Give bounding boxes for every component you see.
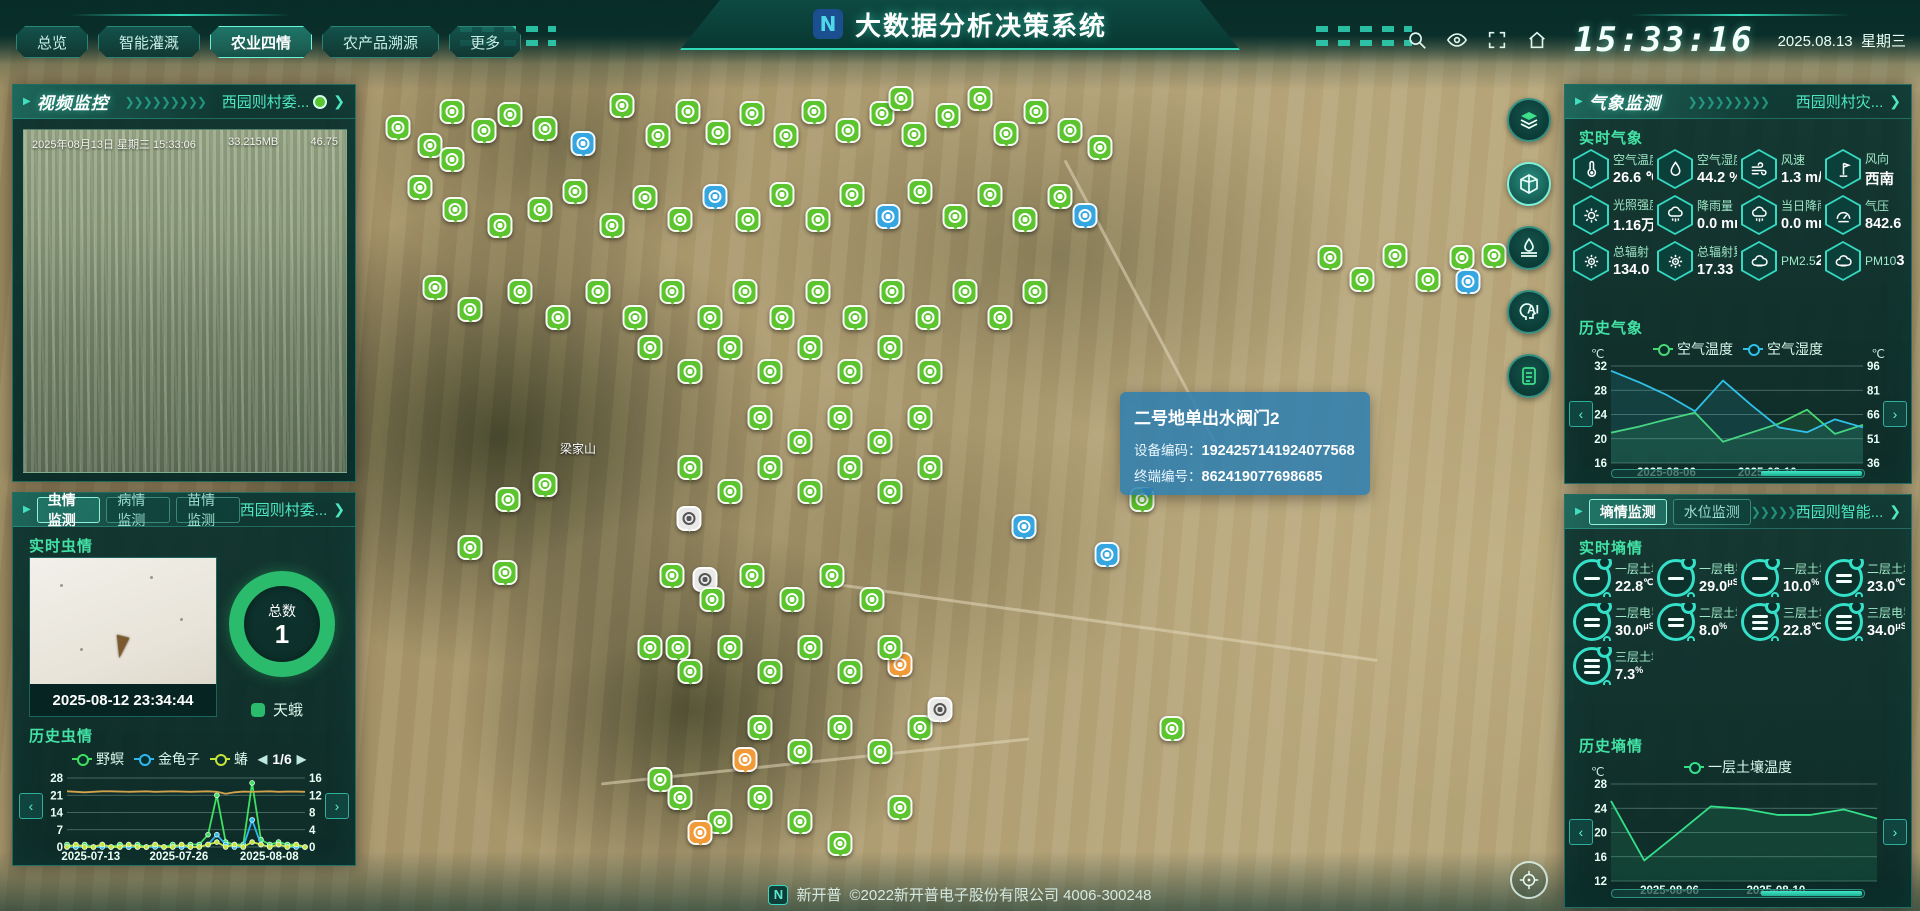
humidity-icon	[1657, 149, 1693, 189]
stat-label: 二层土壤湿度	[1699, 606, 1737, 620]
weather-stat-气压: 气压842.6 hP	[1825, 195, 1905, 235]
stat-label: 光照强度	[1613, 198, 1653, 212]
device-pin[interactable]	[916, 305, 941, 330]
sunshine-icon	[1573, 195, 1609, 235]
stat-value: 44.2 %	[1697, 170, 1737, 186]
device-pin[interactable]	[443, 197, 468, 222]
chart-next-button[interactable]: ›	[1883, 401, 1907, 427]
soil-panel-tabs: 墒情监测水位监测	[1589, 499, 1751, 525]
cube-3d-tool-button[interactable]	[1507, 162, 1551, 206]
header-chevrons	[109, 95, 222, 109]
pin-glyph	[874, 435, 887, 448]
device-pin[interactable]	[878, 335, 903, 360]
svg-text:66: 66	[1867, 410, 1880, 422]
stat-value: 17.33 M	[1697, 262, 1737, 278]
main-nav: 总览智能灌溉农业四情农产品溯源更多	[16, 26, 521, 58]
top-header: N 大数据分析决策系统 总览智能灌溉农业四情农产品溯源更多 15:33:16 2…	[0, 0, 1920, 64]
report-icon	[1517, 364, 1541, 388]
pin-glyph	[674, 213, 687, 226]
device-pin[interactable]	[1023, 279, 1048, 304]
legend-marker	[134, 758, 154, 760]
device-pin[interactable]	[440, 99, 465, 124]
device-pin[interactable]	[806, 207, 831, 232]
pin-glyph	[1462, 275, 1475, 288]
pin-glyph	[1079, 209, 1092, 222]
device-pin[interactable]	[423, 275, 448, 300]
device-pin[interactable]	[953, 279, 978, 304]
pin-glyph	[746, 569, 759, 582]
device-pin[interactable]	[908, 405, 933, 430]
device-pin[interactable]	[496, 487, 521, 512]
device-pin[interactable]	[1416, 267, 1441, 292]
device-pin[interactable]	[668, 207, 693, 232]
video-monitor-panel: ▶ 视频监控 西园则村委... 2025年08月13日 星期三 15:33:06…	[12, 84, 356, 482]
device-pin[interactable]	[700, 587, 725, 612]
device-pin[interactable]	[698, 305, 723, 330]
stat-value: 3.0 ug/m	[1896, 253, 1905, 269]
stat-label: 总辐射	[1613, 245, 1649, 259]
stat-label: 当日降雨量	[1781, 199, 1821, 213]
device-pin[interactable]	[780, 587, 805, 612]
svg-text:20: 20	[1594, 828, 1607, 840]
legend-item-蝽[interactable]: 蝽	[210, 749, 248, 769]
stat-value: 842.6 hP	[1865, 216, 1905, 232]
pin-glyph	[652, 129, 665, 142]
weather-panel-site-link[interactable]: 西园则村灾...	[1796, 91, 1884, 112]
legend-marker	[1684, 766, 1704, 768]
device-pin[interactable]	[1048, 184, 1073, 209]
device-pin[interactable]	[586, 279, 611, 304]
device-pin[interactable]	[688, 820, 713, 845]
device-pin[interactable]	[902, 122, 927, 147]
pin-glyph	[794, 745, 807, 758]
chart-prev-button[interactable]: ‹	[19, 793, 43, 819]
legend-label: 金龟子	[158, 749, 200, 769]
device-pin[interactable]	[748, 785, 773, 810]
pin-glyph	[959, 285, 972, 298]
report-tool-button[interactable]	[1507, 354, 1551, 398]
pin-glyph	[934, 703, 947, 716]
pin-glyph	[464, 303, 477, 316]
device-pin[interactable]	[646, 123, 671, 148]
device-pin[interactable]	[1482, 243, 1507, 268]
device-pin[interactable]	[758, 359, 783, 384]
device-pin[interactable]	[868, 429, 893, 454]
svg-text:AI: AI	[1527, 303, 1539, 317]
stat-label: 空气温度	[1613, 153, 1653, 167]
soil-stat-一层电导率: 一层电导率29.0μS/c	[1657, 559, 1737, 597]
weather-stat-风速: 风速1.3 m/s	[1741, 149, 1821, 189]
pin-glyph	[764, 365, 777, 378]
pin-glyph	[739, 753, 752, 766]
header-deco-dashes	[1316, 26, 1412, 46]
pin-glyph	[539, 478, 552, 491]
device-pin[interactable]	[458, 297, 483, 322]
cube-3d-icon	[1517, 172, 1541, 196]
video-panel-site-link[interactable]: 西园则村委...	[222, 91, 310, 112]
svg-text:24: 24	[1594, 803, 1607, 815]
pin-glyph	[754, 791, 767, 804]
device-pin[interactable]	[706, 120, 731, 145]
device-pin[interactable]	[918, 455, 943, 480]
device-pin[interactable]	[928, 697, 953, 722]
weather-chart-scrollbar[interactable]	[1611, 469, 1865, 478]
device-pin[interactable]	[740, 563, 765, 588]
device-pin[interactable]	[994, 121, 1019, 146]
layers-tool-button[interactable]	[1507, 98, 1551, 142]
device-pin[interactable]	[676, 99, 701, 124]
device-pin[interactable]	[918, 359, 943, 384]
pin-glyph	[714, 815, 727, 828]
search-icon[interactable]	[1406, 29, 1428, 51]
pin-glyph	[616, 99, 629, 112]
nav-button-智能灌溉[interactable]: 智能灌溉	[98, 26, 200, 58]
device-pin[interactable]	[733, 747, 758, 772]
device-pin[interactable]	[508, 279, 533, 304]
irrigation-tool-button[interactable]	[1507, 226, 1551, 270]
header-chevrons	[1751, 505, 1796, 519]
device-pin[interactable]	[488, 213, 513, 238]
weather-panel-title: 气象监测	[1589, 89, 1661, 114]
pin-glyph	[746, 107, 759, 120]
device-pin[interactable]	[806, 279, 831, 304]
device-pin[interactable]	[638, 335, 663, 360]
pin-glyph	[682, 105, 695, 118]
device-pin[interactable]	[718, 335, 743, 360]
device-pin[interactable]	[660, 563, 685, 588]
chart-prev-button[interactable]: ‹	[1569, 819, 1593, 845]
device-pin[interactable]	[838, 359, 863, 384]
soil-chart-box: 12162024282025-08-062025-08-10	[1581, 779, 1893, 897]
device-pin[interactable]	[798, 479, 823, 504]
page-indicator: 1/6	[272, 751, 291, 767]
device-pin[interactable]	[878, 635, 903, 660]
device-pin[interactable]	[678, 659, 703, 684]
device-pin[interactable]	[860, 587, 885, 612]
svg-text:8: 8	[309, 808, 316, 820]
device-pin[interactable]	[668, 785, 693, 810]
pin-glyph	[786, 593, 799, 606]
species-legend[interactable]: 天蛾	[251, 699, 303, 720]
legend-item-空气湿度[interactable]: 空气湿度	[1743, 339, 1823, 359]
stat-label: 三层电导率	[1867, 606, 1905, 620]
eye-icon[interactable]	[1446, 29, 1468, 51]
device-pin[interactable]	[868, 739, 893, 764]
device-pin[interactable]	[748, 715, 773, 740]
device-pin[interactable]	[758, 659, 783, 684]
pin-glyph	[884, 641, 897, 654]
stat-label: 气压	[1865, 199, 1889, 213]
device-pin[interactable]	[788, 429, 813, 454]
device-pin[interactable]	[774, 123, 799, 148]
device-pin[interactable]	[493, 560, 518, 585]
legend-item-金龟子[interactable]: 金龟子	[134, 749, 200, 769]
device-pin[interactable]	[1013, 207, 1038, 232]
device-pin[interactable]	[458, 535, 483, 560]
device-pin[interactable]	[1450, 245, 1475, 270]
chart-next-button[interactable]: ›	[1883, 819, 1907, 845]
soil-panel-site-link[interactable]: 西园则智能...	[1796, 501, 1884, 522]
insect-tab-苗情监测[interactable]: 苗情监测	[176, 497, 240, 523]
pin-glyph	[884, 341, 897, 354]
insect-chart-legend: 野螟金龟子蝽◀1/6▶	[39, 749, 339, 769]
device-pin[interactable]	[828, 405, 853, 430]
stat-value: 1.3 m/s	[1781, 170, 1821, 186]
device-pin[interactable]	[1024, 99, 1049, 124]
footer: N 新开普 ©2022新开普电子股份有限公司 4006-300248	[0, 884, 1920, 905]
device-pin[interactable]	[736, 207, 761, 232]
device-pin[interactable]	[908, 179, 933, 204]
chart-prev-button[interactable]: ‹	[1569, 401, 1593, 427]
pin-glyph	[895, 92, 908, 105]
device-pin[interactable]	[802, 99, 827, 124]
device-pin[interactable]	[472, 118, 497, 143]
pin-glyph	[949, 210, 962, 223]
device-pin[interactable]	[533, 472, 558, 497]
device-pin[interactable]	[733, 279, 758, 304]
svg-text:14: 14	[50, 808, 63, 820]
device-pin[interactable]	[788, 739, 813, 764]
device-pin[interactable]	[528, 197, 553, 222]
device-pin[interactable]	[666, 635, 691, 660]
device-pin[interactable]	[748, 405, 773, 430]
pin-glyph	[834, 411, 847, 424]
device-pin[interactable]	[838, 659, 863, 684]
nav-button-农产品溯源[interactable]: 农产品溯源	[322, 26, 439, 58]
header-deco-line	[1630, 14, 1850, 16]
device-pin[interactable]	[828, 831, 853, 856]
insect-panel-site-link[interactable]: 西园则村委...	[240, 499, 328, 520]
digital-clock: 15:33:16	[1574, 20, 1754, 60]
pin-glyph	[894, 801, 907, 814]
header-marker: ▶	[23, 504, 31, 515]
video-value: 46.75	[310, 136, 338, 152]
stat-value: 134.0 w	[1613, 262, 1653, 278]
device-pin[interactable]	[718, 635, 743, 660]
stat-label: 一层土壤温度	[1615, 562, 1653, 576]
device-pin[interactable]	[703, 184, 728, 209]
pin-glyph	[606, 219, 619, 232]
device-pin[interactable]	[828, 715, 853, 740]
legend-item-空气温度[interactable]: 空气温度	[1653, 339, 1733, 359]
map-road	[823, 581, 1378, 662]
fullscreen-icon[interactable]	[1486, 29, 1508, 51]
device-pin[interactable]	[788, 809, 813, 834]
ai-icon: AI	[1517, 300, 1541, 324]
page-prev-icon[interactable]: ◀	[258, 752, 267, 766]
dashboard: 梁家山 二号地单出水阀门2 设备编码：1924257141924077568 终…	[0, 0, 1920, 911]
svg-text:51: 51	[1867, 434, 1880, 446]
insect-tab-病情监测[interactable]: 病情监测	[106, 497, 170, 523]
panel-arrow-icon[interactable]	[1889, 503, 1901, 520]
pin-glyph	[842, 124, 855, 137]
pin-glyph	[644, 641, 657, 654]
device-pin[interactable]	[770, 305, 795, 330]
video-size: 33.215MB	[228, 136, 278, 152]
species-swatch	[251, 703, 265, 717]
soil-stat-二层土壤湿度: 二层土壤湿度8.0%	[1657, 603, 1737, 641]
device-pin[interactable]	[758, 455, 783, 480]
device-pin[interactable]	[408, 175, 433, 200]
device-pin[interactable]	[533, 116, 558, 141]
ai-tool-button[interactable]: AI	[1507, 290, 1551, 334]
panel-arrow-icon[interactable]	[1889, 93, 1901, 110]
device-pin[interactable]	[571, 131, 596, 156]
pin-glyph	[666, 569, 679, 582]
device-pin[interactable]	[610, 93, 635, 118]
device-pin[interactable]	[968, 86, 993, 111]
pin-glyph	[974, 92, 987, 105]
stat-value: 2.0 ug/m	[1816, 253, 1821, 269]
radiation-icon	[1573, 241, 1609, 281]
pin-glyph	[724, 341, 737, 354]
stat-label: PM2.5	[1781, 254, 1816, 268]
device-pin[interactable]	[546, 305, 571, 330]
device-pin[interactable]	[1012, 514, 1037, 539]
pin-glyph	[577, 137, 590, 150]
device-pin[interactable]	[888, 795, 913, 820]
device-pin[interactable]	[1383, 243, 1408, 268]
insect-tab-虫情监测[interactable]: 虫情监测	[37, 497, 101, 523]
stat-label: PM10	[1865, 254, 1896, 268]
soil-chart-legend: 一层土壤温度	[1565, 757, 1911, 777]
device-pin[interactable]	[623, 305, 648, 330]
insect-photo[interactable]: 2025-08-12 23:34:44	[29, 557, 217, 717]
device-pin[interactable]	[943, 204, 968, 229]
svg-text:96: 96	[1867, 361, 1880, 373]
stat-value: 34.0μS/	[1867, 623, 1905, 639]
nav-button-更多[interactable]: 更多	[449, 26, 521, 58]
device-pin[interactable]	[838, 455, 863, 480]
pin-glyph	[499, 566, 512, 579]
device-pin[interactable]	[988, 305, 1013, 330]
device-pin[interactable]	[678, 359, 703, 384]
stat-value: 22.8℃	[1783, 623, 1821, 639]
legend-item-一层土壤温度[interactable]: 一层土壤温度	[1684, 757, 1792, 777]
pin-glyph	[478, 124, 491, 137]
svg-text:21: 21	[50, 790, 63, 802]
stat-value: 29.0μS/c	[1699, 579, 1737, 595]
device-pin[interactable]	[840, 182, 865, 207]
device-pin[interactable]	[718, 479, 743, 504]
device-pin[interactable]	[677, 506, 702, 531]
soil-unit-left: ℃	[1591, 765, 1604, 779]
device-pin[interactable]	[740, 101, 765, 126]
device-pin[interactable]	[1318, 245, 1343, 270]
device-pin[interactable]	[798, 335, 823, 360]
device-pin[interactable]	[660, 279, 685, 304]
device-pin[interactable]	[1073, 203, 1098, 228]
stat-value: 1.16万 L	[1613, 218, 1653, 234]
pin-glyph	[429, 281, 442, 294]
video-feed[interactable]: 2025年08月13日 星期三 15:33:06 33.215MB 46.75	[23, 129, 347, 473]
device-pin[interactable]	[563, 179, 588, 204]
scrollbar-handle[interactable]	[1761, 471, 1862, 476]
header-right-cluster: 15:33:16 2025.08.13 星期三	[1406, 20, 1906, 60]
device-pin[interactable]	[798, 635, 823, 660]
device-pin[interactable]	[836, 118, 861, 143]
realtime-weather-label: 实时气象	[1579, 127, 1643, 148]
nav-button-总览[interactable]: 总览	[16, 26, 88, 58]
device-pin[interactable]	[633, 185, 658, 210]
header-marker: ▶	[23, 96, 31, 107]
pin-glyph	[1054, 190, 1067, 203]
pin-glyph	[924, 365, 937, 378]
pin-glyph	[392, 121, 405, 134]
stat-value: 7.3%	[1615, 667, 1643, 683]
device-pin[interactable]	[843, 305, 868, 330]
pin-glyph	[780, 129, 793, 142]
weather-chart-box: 163620512466288132962025-08-062025-08-10	[1581, 361, 1893, 479]
map-tool-column: AI	[1507, 98, 1551, 398]
rainfall-icon	[1741, 195, 1777, 235]
pin-glyph	[922, 311, 935, 324]
weather-stat-光照强度: 光照强度1.16万 L	[1573, 195, 1653, 235]
pin-glyph	[876, 107, 889, 120]
device-pin[interactable]	[1088, 135, 1113, 160]
device-pin[interactable]	[1456, 269, 1481, 294]
pin-glyph	[742, 213, 755, 226]
legend-item-野螟[interactable]: 野螟	[72, 749, 124, 769]
nav-button-农业四情[interactable]: 农业四情	[210, 26, 312, 58]
soil-tab-墒情监测[interactable]: 墒情监测	[1589, 499, 1667, 525]
pin-glyph	[1019, 213, 1032, 226]
pin-glyph	[694, 826, 707, 839]
device-pin[interactable]	[678, 455, 703, 480]
device-pin[interactable]	[1160, 716, 1185, 741]
pin-glyph	[804, 341, 817, 354]
pin-glyph	[674, 791, 687, 804]
home-icon[interactable]	[1526, 29, 1548, 51]
device-pin[interactable]	[1095, 542, 1120, 567]
device-pin[interactable]	[770, 182, 795, 207]
panel-arrow-icon[interactable]	[333, 93, 345, 110]
page-next-icon[interactable]: ▶	[297, 752, 306, 766]
chart-next-button[interactable]: ›	[325, 793, 349, 819]
svg-text:4: 4	[309, 825, 316, 837]
device-pin[interactable]	[386, 115, 411, 140]
pin-glyph	[1324, 251, 1337, 264]
device-pin[interactable]	[889, 86, 914, 111]
device-pin[interactable]	[1350, 267, 1375, 292]
device-pin[interactable]	[936, 103, 961, 128]
device-pin[interactable]	[880, 279, 905, 304]
weather-stat-PM2.5: PM2.52.0 ug/m	[1741, 241, 1821, 281]
panel-arrow-icon[interactable]	[333, 501, 345, 518]
video-panel-header: ▶ 视频监控 西园则村委...	[13, 85, 355, 119]
pin-glyph	[494, 219, 507, 232]
device-pin[interactable]	[878, 479, 903, 504]
stat-label: 三层土壤温度	[1783, 606, 1821, 620]
device-pin[interactable]	[978, 182, 1003, 207]
device-pin[interactable]	[1058, 118, 1083, 143]
pin-glyph	[844, 665, 857, 678]
stat-value: 26.6 ℃	[1613, 170, 1653, 186]
device-pin[interactable]	[440, 147, 465, 172]
legend-label: 蝽	[234, 749, 248, 769]
pin-glyph	[1356, 273, 1369, 286]
device-pin[interactable]	[876, 204, 901, 229]
soil-tab-水位监测[interactable]: 水位监测	[1673, 499, 1751, 525]
svg-text:28: 28	[1594, 385, 1607, 397]
device-pin[interactable]	[498, 102, 523, 127]
device-pin[interactable]	[820, 563, 845, 588]
pin-glyph	[684, 461, 697, 474]
stat-value: 10.0%	[1783, 579, 1819, 595]
device-pin[interactable]	[600, 213, 625, 238]
device-pin[interactable]	[638, 635, 663, 660]
camera-pin-icon	[313, 95, 327, 109]
